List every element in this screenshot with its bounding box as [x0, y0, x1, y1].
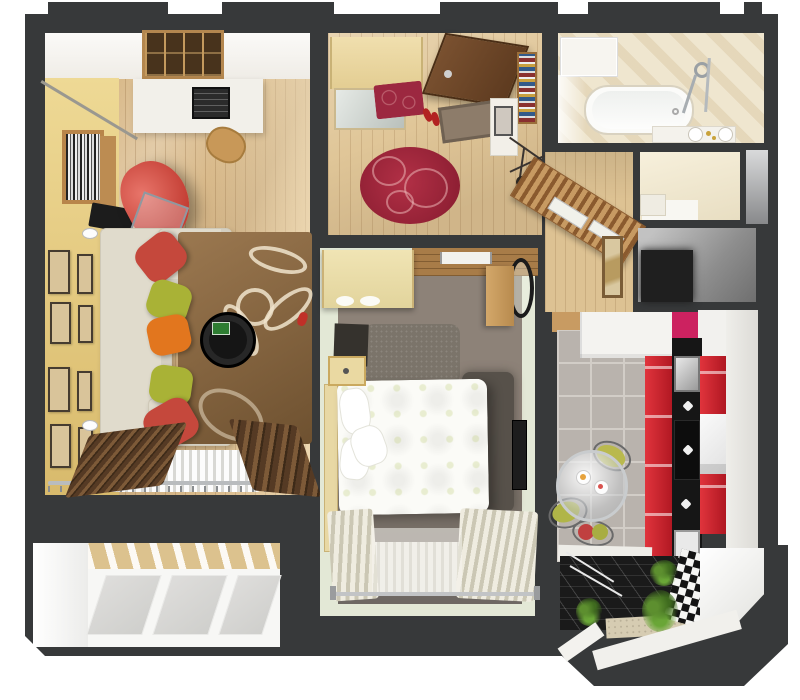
balcony-left-wall: [33, 543, 88, 647]
olive-cushion: [592, 524, 608, 540]
wall-tab: [440, 2, 558, 15]
rod-bracket: [330, 586, 336, 600]
wall-frame: [50, 302, 71, 344]
food: [580, 474, 586, 480]
utility-shaft: [746, 150, 768, 224]
wall-frame: [77, 254, 93, 294]
bathtub-drain: [672, 108, 679, 115]
red-cabinet-run: [700, 356, 726, 420]
wall-frame: [48, 367, 70, 412]
rug-ring: [386, 190, 414, 214]
balcony-wood-band: [88, 543, 280, 569]
wc-cabinet: [640, 194, 666, 216]
red-bench: [373, 81, 424, 120]
plant: [650, 560, 678, 586]
bathroom-wall-shade: [558, 75, 586, 143]
rug-ring: [372, 156, 406, 186]
magenta-cabinet: [672, 312, 698, 340]
door-handle: [444, 70, 452, 78]
nightstand-lamp: [343, 368, 349, 374]
bookshelf: [62, 130, 104, 204]
soap-dish: [712, 136, 716, 140]
soap-dish: [706, 131, 711, 136]
bookshelf-panel: [100, 136, 116, 212]
wall-frame: [77, 371, 92, 411]
gray-shag-rug: [364, 324, 460, 384]
wall-tab: [744, 2, 762, 15]
hall-picture: [494, 106, 513, 136]
red-cabinet-run: [645, 356, 673, 562]
cube-shelf: [142, 30, 224, 79]
floor-plan-scene: [0, 0, 800, 700]
food: [598, 484, 603, 489]
bedroom-dresser: [486, 266, 514, 326]
floor-lamp: [82, 228, 98, 239]
kitchen-white-wall: [726, 310, 758, 565]
green-book: [212, 322, 230, 335]
wall-frame: [50, 424, 71, 468]
wall-tab: [222, 2, 334, 15]
wall-frame: [78, 305, 93, 343]
wall-mounted-tv: [512, 420, 527, 490]
storage-dark-floor: [641, 250, 693, 302]
ceiling-light-bar: [440, 252, 492, 264]
rod-bracket: [534, 586, 540, 600]
bathroom-cabinet: [560, 37, 618, 77]
glass-dining-table: [556, 450, 628, 522]
bedroom-curtain-rod: [334, 592, 536, 596]
red-cabinet-run: [700, 472, 726, 534]
bedroom-curtain-right: [456, 508, 539, 602]
corridor-picture: [602, 236, 623, 298]
folded-linen: [360, 296, 380, 306]
wall-tab: [48, 2, 168, 15]
plant: [576, 598, 602, 626]
kitchen-upper-cabinets: [580, 312, 674, 358]
wall-tab: [588, 2, 720, 15]
plant: [642, 590, 678, 632]
printer: [192, 87, 230, 119]
folded-linen: [336, 296, 354, 306]
sink-basin: [718, 127, 733, 142]
kitchen-entry-wood: [552, 312, 582, 332]
coffee-table: [200, 312, 256, 368]
floor-lamp: [82, 420, 98, 431]
sheer-curtain: [372, 528, 462, 596]
wall-frame: [48, 250, 70, 294]
sink-basin: [688, 127, 703, 142]
hall-book-shelf: [517, 52, 537, 124]
steel-sink: [674, 356, 700, 392]
